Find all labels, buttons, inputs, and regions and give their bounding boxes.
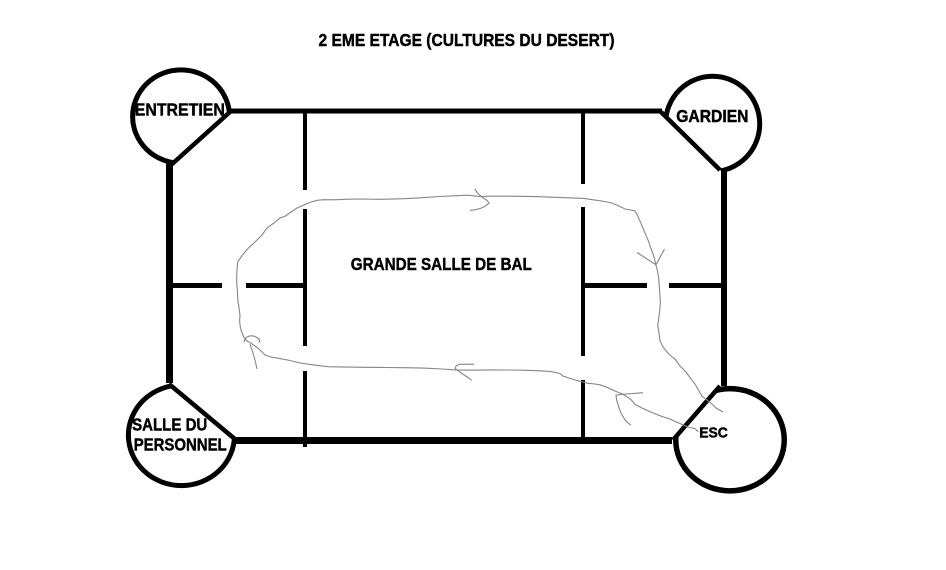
svg-text:GRANDE SALLE DE BAL: GRANDE SALLE DE BAL: [351, 254, 532, 274]
svg-text:ESC: ESC: [699, 424, 728, 441]
svg-text:GARDIEN: GARDIEN: [676, 106, 748, 126]
svg-text:2 EME ETAGE (CULTURES DU DESER: 2 EME ETAGE (CULTURES DU DESERT): [319, 30, 615, 50]
svg-text:SALLE DU: SALLE DU: [132, 415, 207, 435]
svg-text:PERSONNEL: PERSONNEL: [134, 435, 227, 455]
svg-text:ENTRETIEN: ENTRETIEN: [135, 99, 225, 119]
